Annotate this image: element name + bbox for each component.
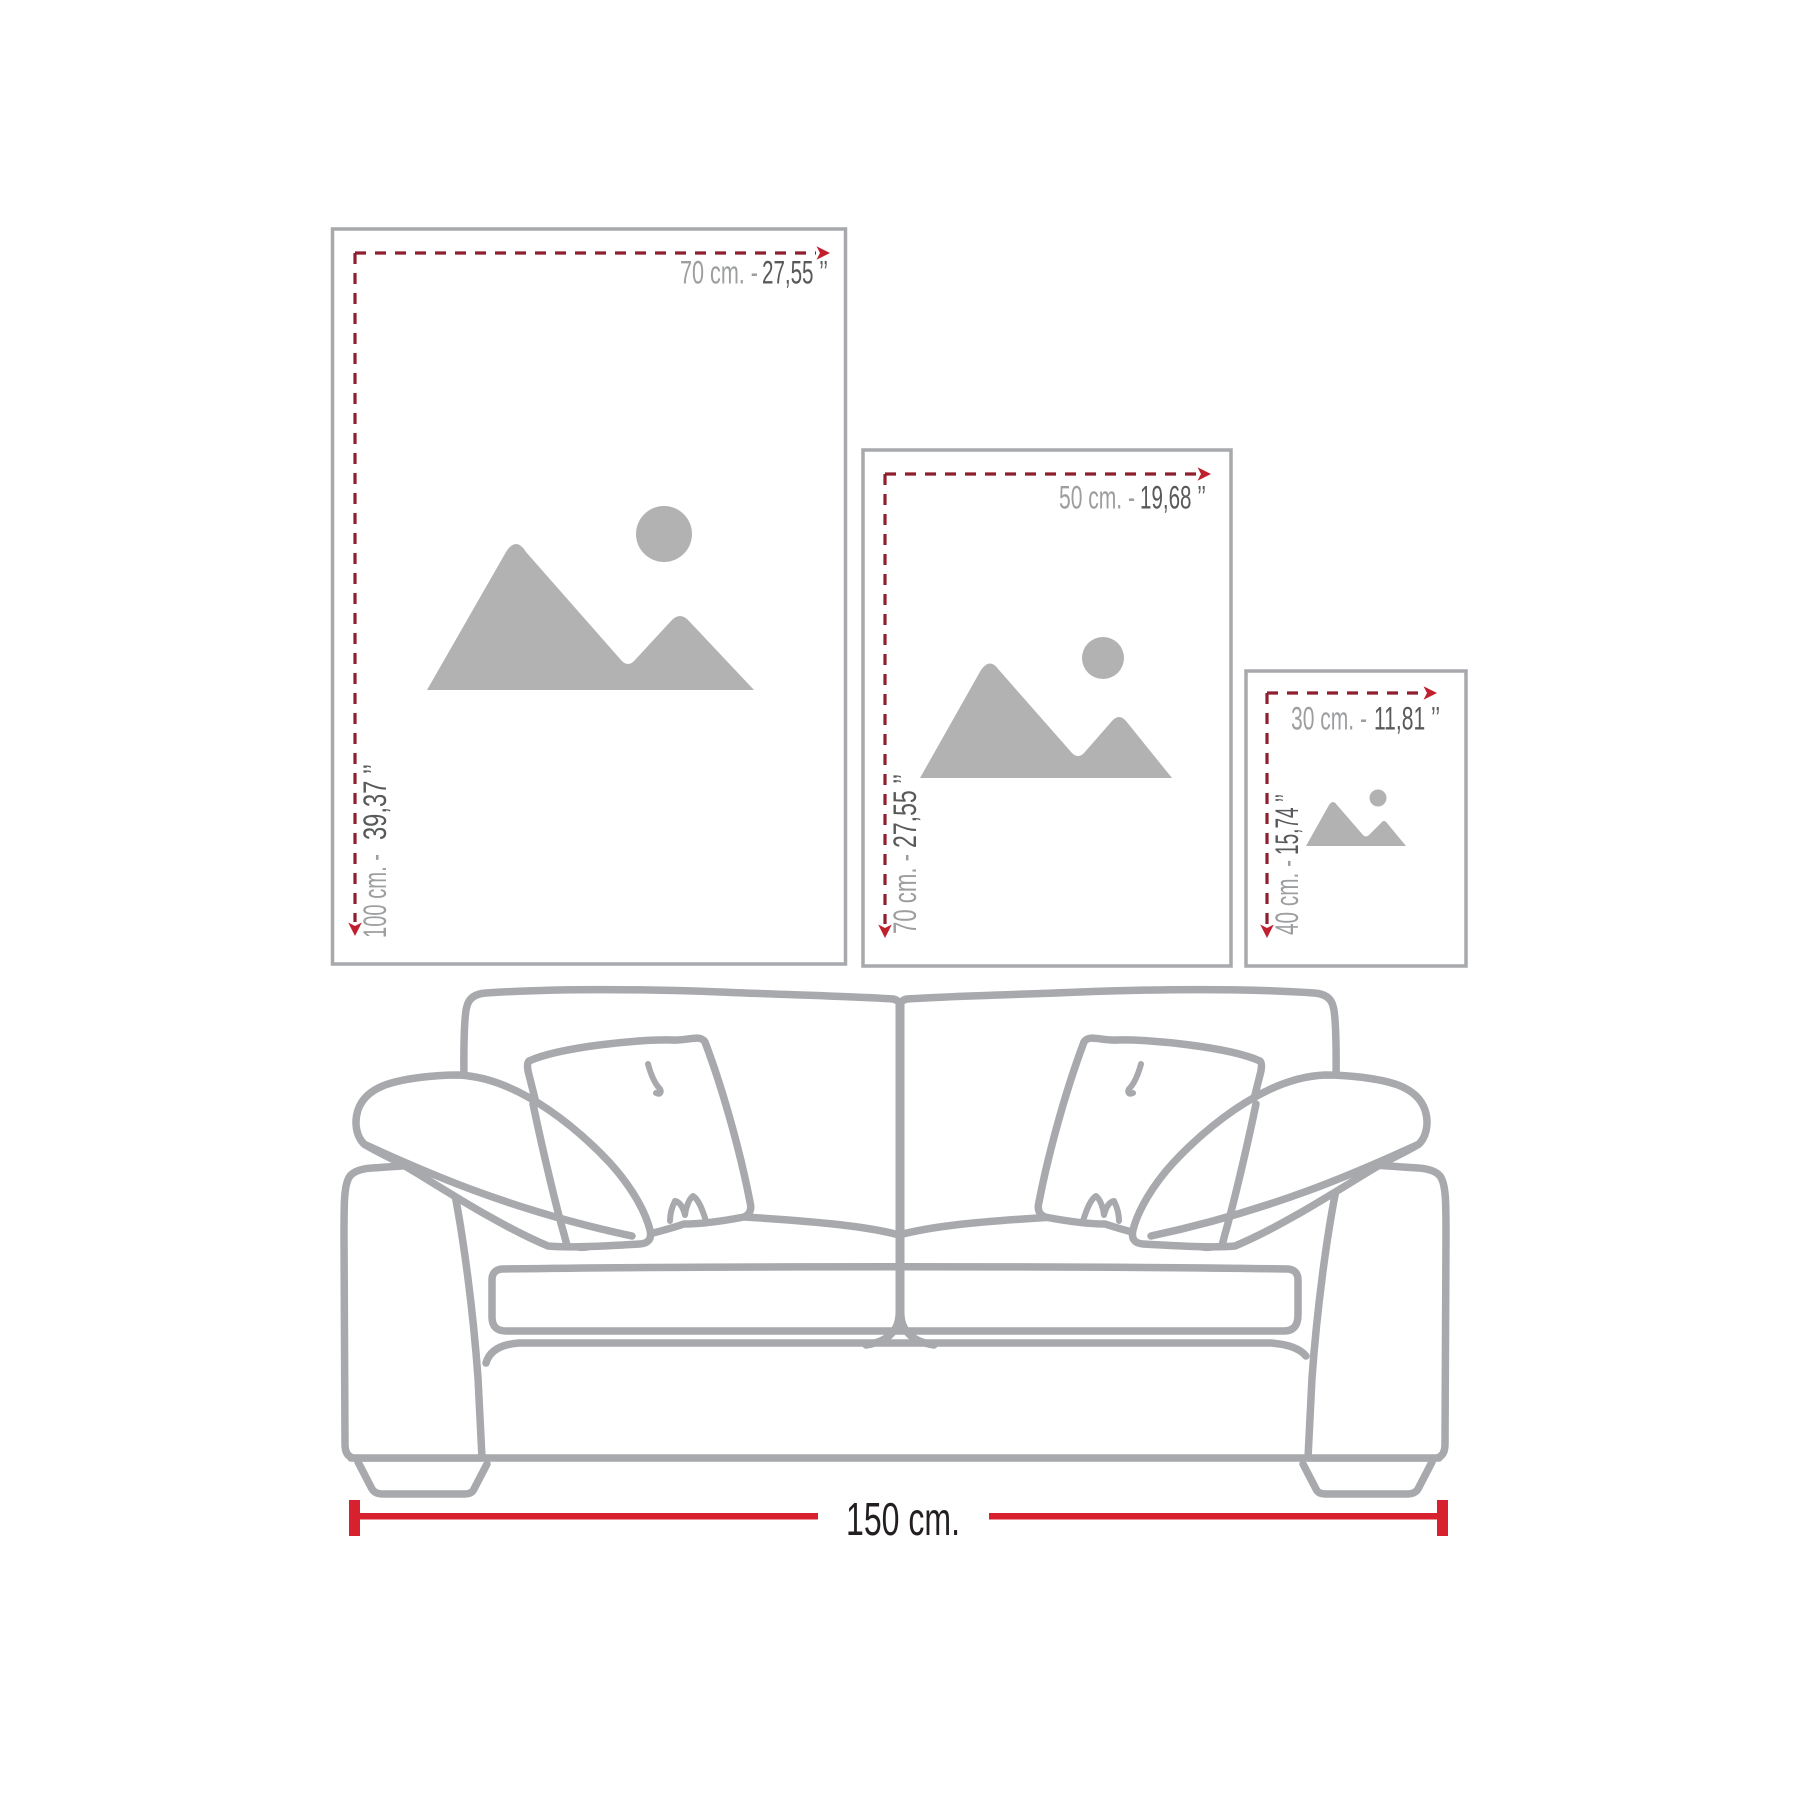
svg-text:70 cm. -: 70 cm. - [887, 854, 923, 934]
svg-text:100 cm. -: 100 cm. - [357, 854, 393, 938]
svg-text:40 cm. -: 40 cm. - [1269, 860, 1305, 935]
svg-text:27,55 ’’: 27,55 ’’ [887, 774, 923, 848]
svg-text:19,68 ’’: 19,68 ’’ [1140, 480, 1206, 516]
svg-text:11,81 ’’: 11,81 ’’ [1374, 701, 1440, 737]
svg-text:150 cm.: 150 cm. [846, 1493, 960, 1545]
svg-text:27,55 ’’: 27,55 ’’ [762, 255, 828, 291]
svg-text:70 cm. -: 70 cm. - [680, 255, 758, 291]
svg-text:50 cm. -: 50 cm. - [1059, 480, 1135, 516]
svg-text:30 cm. -: 30 cm. - [1291, 701, 1367, 737]
svg-text:39,37 ’’: 39,37 ’’ [357, 764, 393, 840]
svg-text:15,74 ’’: 15,74 ’’ [1269, 794, 1305, 855]
